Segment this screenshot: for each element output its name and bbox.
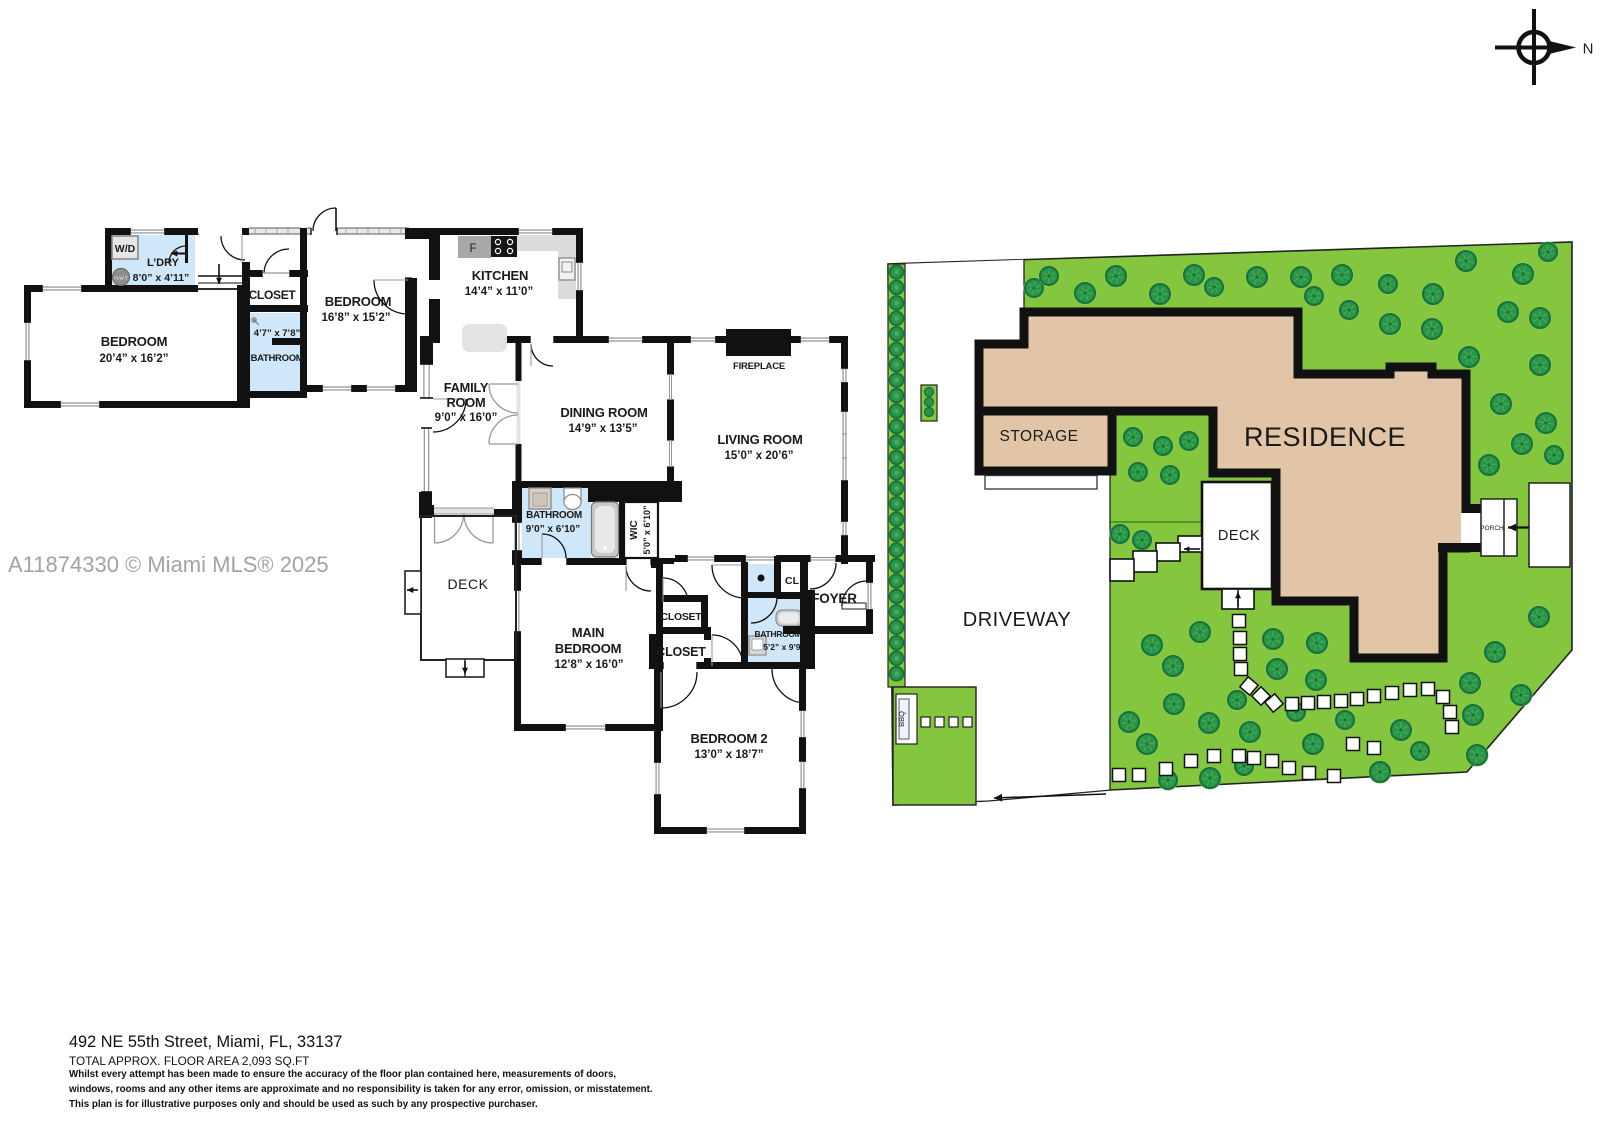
- svg-text:13’0” x 18’7”: 13’0” x 18’7”: [694, 749, 763, 761]
- svg-text:STORAGE: STORAGE: [999, 428, 1078, 445]
- svg-text:RESIDENCE: RESIDENCE: [1244, 422, 1406, 452]
- svg-text:PORCH: PORCH: [1480, 525, 1504, 532]
- svg-text:8’0” x 4’11”: 8’0” x 4’11”: [133, 272, 190, 284]
- svg-text:5’2” x 9’9”: 5’2” x 9’9”: [763, 642, 805, 652]
- svg-text:ROOM: ROOM: [446, 395, 485, 410]
- svg-text:FAMILY: FAMILY: [444, 380, 489, 395]
- svg-text:WIC: WIC: [629, 520, 640, 539]
- svg-text:492 NE 55th Street, Miami, FL,: 492 NE 55th Street, Miami, FL, 33137: [69, 1033, 342, 1051]
- svg-text:FOYER: FOYER: [811, 591, 857, 606]
- svg-text:CL: CL: [785, 575, 800, 587]
- svg-text:BATHROOM: BATHROOM: [251, 353, 304, 364]
- svg-text:15’0” x 20’6”: 15’0” x 20’6”: [724, 450, 793, 462]
- svg-text:12’8” x 16’0”: 12’8” x 16’0”: [554, 659, 623, 671]
- svg-text:BEDROOM: BEDROOM: [325, 294, 392, 309]
- svg-text:DRIVEWAY: DRIVEWAY: [963, 609, 1071, 631]
- svg-text:BEDROOM: BEDROOM: [101, 334, 168, 349]
- svg-text:14’9” x 13’5”: 14’9” x 13’5”: [568, 423, 637, 435]
- svg-text:N: N: [1583, 41, 1594, 58]
- svg-text:W/D: W/D: [115, 243, 136, 255]
- svg-text:Whilst every attempt has been: Whilst every attempt has been made to en…: [69, 1069, 616, 1080]
- svg-text:14’4” x 11’0”: 14’4” x 11’0”: [465, 286, 533, 298]
- svg-text:BEDROOM 2: BEDROOM 2: [691, 731, 768, 746]
- svg-text:F: F: [469, 243, 476, 255]
- svg-text:BBQ: BBQ: [897, 711, 906, 727]
- svg-text:CLOSET: CLOSET: [661, 611, 703, 623]
- svg-text:16’8” x 15’2”: 16’8” x 15’2”: [321, 312, 390, 324]
- svg-text:CLOSET: CLOSET: [656, 645, 706, 659]
- svg-text:L’DRY: L’DRY: [147, 257, 180, 269]
- svg-text:DECK: DECK: [1218, 528, 1260, 544]
- svg-text:CLOSET: CLOSET: [249, 288, 297, 302]
- svg-text:windows, rooms and any other i: windows, rooms and any other items are a…: [68, 1084, 653, 1095]
- svg-text:BATHROOM: BATHROOM: [526, 510, 582, 521]
- svg-text:DINING ROOM: DINING ROOM: [560, 405, 647, 420]
- svg-text:TOTAL APPROX. FLOOR AREA 2,093: TOTAL APPROX. FLOOR AREA 2,093 SQ.FT: [69, 1054, 309, 1068]
- svg-text:This plan is for illustrative: This plan is for illustrative purposes o…: [69, 1099, 538, 1110]
- svg-text:4’7” x 7’8”: 4’7” x 7’8”: [254, 328, 301, 339]
- svg-text:9’0” x 6’10”: 9’0” x 6’10”: [526, 524, 580, 535]
- svg-text:DECK: DECK: [448, 576, 489, 592]
- svg-text:MAIN: MAIN: [572, 625, 604, 640]
- svg-text:5’0” x 6’10”: 5’0” x 6’10”: [642, 505, 652, 554]
- svg-text:LIVING ROOM: LIVING ROOM: [717, 432, 802, 447]
- svg-text:9’0” x 16’0”: 9’0” x 16’0”: [435, 412, 498, 424]
- svg-text:FIREPLACE: FIREPLACE: [733, 361, 785, 372]
- svg-text:KITCHEN: KITCHEN: [472, 268, 528, 283]
- svg-text:H.W.T: H.W.T: [114, 276, 127, 282]
- svg-text:A11874330 © Miami MLS® 2025: A11874330 © Miami MLS® 2025: [8, 552, 329, 577]
- svg-text:20’4” x 16’2”: 20’4” x 16’2”: [99, 353, 168, 365]
- svg-text:BEDROOM: BEDROOM: [555, 641, 622, 656]
